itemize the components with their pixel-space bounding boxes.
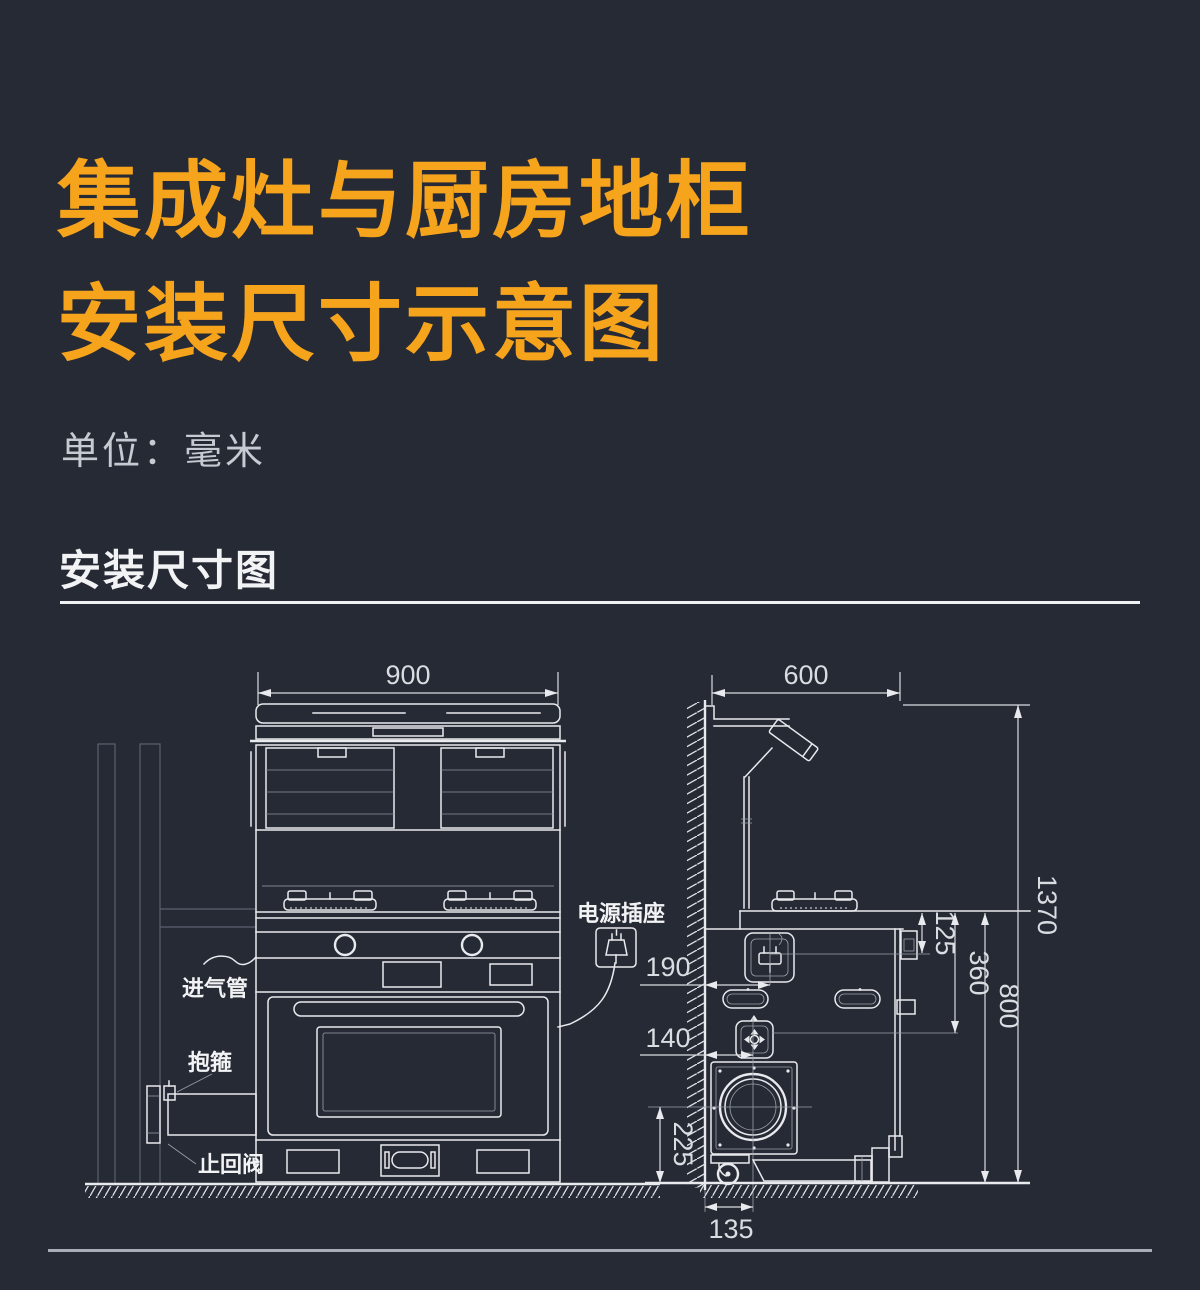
- gas-pipe-leader-curve: [204, 956, 256, 964]
- control-panel: [256, 932, 560, 992]
- ground-front: [85, 1184, 660, 1198]
- knob-right: [462, 935, 482, 955]
- check-valve: [147, 1086, 160, 1143]
- oven-handle: [294, 1002, 524, 1016]
- smoke-grilles: [256, 748, 560, 830]
- page-title-line1: 集成灶与厨房地柜: [57, 154, 753, 248]
- power-socket-front: [558, 928, 636, 1027]
- page-title: 集成灶与厨房地柜安装尺寸示意图: [57, 140, 753, 386]
- base-strip: [256, 1140, 560, 1176]
- label-power-socket: 电源插座: [577, 901, 665, 926]
- power-cord: [558, 963, 615, 1027]
- dim-1370-label: 1370: [1032, 875, 1062, 935]
- dim-360-label: 360: [964, 950, 994, 995]
- burner-side: [772, 891, 857, 911]
- section-heading: 安装尺寸图: [59, 537, 279, 598]
- dim-total-height: 1370: [1014, 705, 1062, 1183]
- leveling-foot: [872, 1148, 889, 1182]
- unit-label: 单位：毫米: [61, 420, 266, 475]
- grille-handle-right: [476, 748, 504, 757]
- oven-door: [268, 997, 548, 1135]
- hood-side: [705, 706, 819, 908]
- check-valve-leader-line: [168, 1144, 196, 1164]
- hose-clamp: [164, 1086, 175, 1100]
- dim-190-label: 190: [645, 952, 690, 982]
- front-view: 900 进气管 抱箍 止回阀 电源插座: [85, 660, 665, 1198]
- label-gas-pipe: 进气管: [182, 976, 248, 1001]
- dim-140-label: 140: [645, 1023, 690, 1053]
- vent-pill-mid: [835, 988, 880, 1008]
- fan-outlet-panel: [711, 1062, 797, 1154]
- section-divider: [60, 601, 1140, 604]
- page-title-line2: 安装尺寸示意图: [57, 277, 666, 371]
- dim-fan-from-wall: 135: [705, 1203, 754, 1244]
- stove-front: [250, 704, 566, 1182]
- bottom-divider: [48, 1249, 1152, 1252]
- ground-side: [645, 1183, 1030, 1198]
- dim-600-label: 600: [783, 660, 828, 690]
- dim-135-label: 135: [708, 1214, 753, 1244]
- dim-stove-width: 900: [258, 660, 558, 705]
- wall-pipe-ladder: [98, 744, 256, 1184]
- label-check-valve: 止回阀: [198, 1152, 264, 1177]
- base-tray: [753, 1160, 871, 1181]
- burners-front: [256, 886, 560, 918]
- knob-left: [335, 935, 355, 955]
- dim-800-label: 800: [994, 983, 1024, 1028]
- display-window: [383, 962, 441, 987]
- cabinet-front-edge: [895, 929, 900, 1150]
- socket-side: [745, 933, 794, 982]
- vent-pill-rear: [723, 988, 768, 1008]
- side-view: 600 125 360 800 1370: [640, 660, 1062, 1244]
- corrugated-hose: [168, 1094, 256, 1135]
- clamp-leader-line: [177, 1074, 212, 1092]
- dim-225-label: 225: [668, 1121, 698, 1166]
- base-vent-left: [287, 1150, 339, 1173]
- installation-diagram: 900 进气管 抱箍 止回阀 电源插座: [0, 640, 1200, 1260]
- dim-hood-depth: 600: [712, 660, 900, 705]
- base-vent-right: [477, 1150, 529, 1173]
- label-clamp: 抱箍: [188, 1050, 232, 1075]
- dim-900-label: 900: [385, 660, 430, 690]
- grille-handle-left: [318, 748, 346, 757]
- switch-window: [490, 964, 532, 985]
- oven-window: [317, 1027, 501, 1117]
